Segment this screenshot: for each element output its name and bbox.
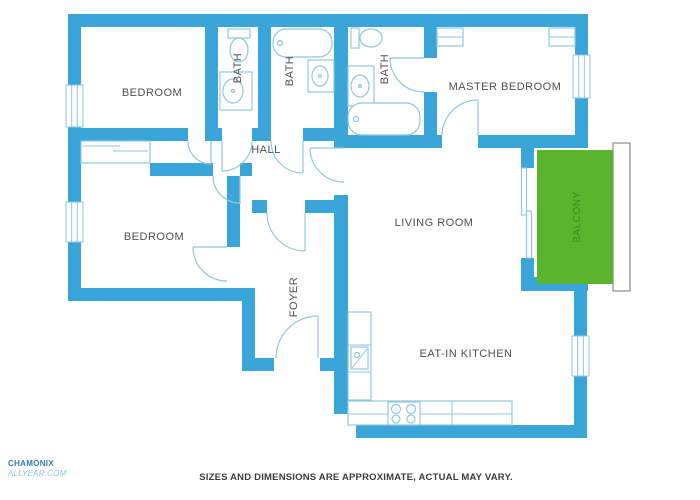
room-label-balcony: BALCONY: [572, 191, 583, 242]
wall: [348, 135, 442, 148]
wall: [258, 27, 271, 141]
window: [573, 55, 590, 98]
closet: [437, 28, 463, 46]
wall: [252, 128, 271, 141]
wall: [521, 148, 534, 168]
door-swing: [310, 148, 344, 182]
wall: [68, 288, 255, 301]
door-swing: [390, 58, 424, 92]
wall: [242, 358, 274, 371]
wall: [424, 27, 437, 58]
floorplan-drawing: BEDROOM BATH BATH BATH MASTER BEDROOM HA…: [0, 0, 700, 500]
windows: [66, 55, 590, 376]
wall: [227, 176, 240, 247]
room-label-bedroom1: BEDROOM: [122, 87, 182, 99]
bathtub-fixture: [273, 29, 332, 57]
sink-fixture: [308, 60, 334, 92]
room-label-eat-in-kitchen: EAT-IN KITCHEN: [420, 348, 513, 360]
sliding-door-panel: [522, 168, 527, 215]
wall: [205, 27, 218, 141]
wall: [334, 14, 348, 148]
room-label-bath1: BATH: [232, 53, 244, 84]
toilet-fixture: [351, 28, 382, 48]
footer: CHAMONIX ALLYEAR.COM SIZES AND DIMENSION…: [7, 459, 513, 483]
balcony-railing: [613, 143, 630, 291]
closet: [549, 28, 575, 46]
wall: [424, 92, 437, 135]
wall: [81, 128, 188, 141]
entry-door-swing: [276, 316, 318, 358]
stove-fixture: [388, 402, 420, 425]
room-label-bath2: BATH: [284, 56, 296, 87]
window: [66, 202, 83, 242]
room-label-hall: HALL: [251, 144, 281, 156]
wall: [478, 135, 588, 148]
logo-line2: ALLYEAR.COM: [7, 469, 67, 478]
sink-fixture: [348, 66, 374, 106]
wall: [252, 200, 267, 213]
door-swing: [193, 247, 227, 281]
logo-line1: CHAMONIX: [8, 459, 54, 468]
kitchen-counter: [348, 401, 512, 425]
wall: [320, 358, 348, 371]
room-label-bath3: BATH: [379, 54, 391, 85]
disclaimer-text: SIZES AND DIMENSIONS ARE APPROXIMATE, AC…: [199, 472, 513, 483]
closet-sliding-door: [81, 141, 150, 163]
room-label-master-bedroom: MASTER BEDROOM: [449, 81, 562, 93]
window: [572, 336, 589, 376]
wall: [68, 14, 81, 301]
room-label-living-room: LIVING ROOM: [395, 217, 474, 229]
wall: [211, 128, 222, 141]
bathtub-fixture: [348, 103, 420, 135]
wall: [150, 163, 213, 176]
door-swing: [442, 100, 478, 135]
room-label-foyer: FOYER: [288, 277, 300, 317]
door-swing: [267, 213, 305, 251]
wall: [303, 128, 334, 141]
door-swing: [188, 141, 211, 164]
wall: [68, 14, 588, 27]
wall: [356, 425, 587, 438]
wall: [334, 195, 348, 371]
room-label-bedroom2: BEDROOM: [124, 231, 184, 243]
wall: [305, 200, 348, 213]
sliding-door-panel: [527, 211, 532, 258]
window: [66, 85, 83, 127]
floorplan-page: BEDROOM BATH BATH BATH MASTER BEDROOM HA…: [0, 0, 700, 500]
wall: [240, 163, 252, 176]
